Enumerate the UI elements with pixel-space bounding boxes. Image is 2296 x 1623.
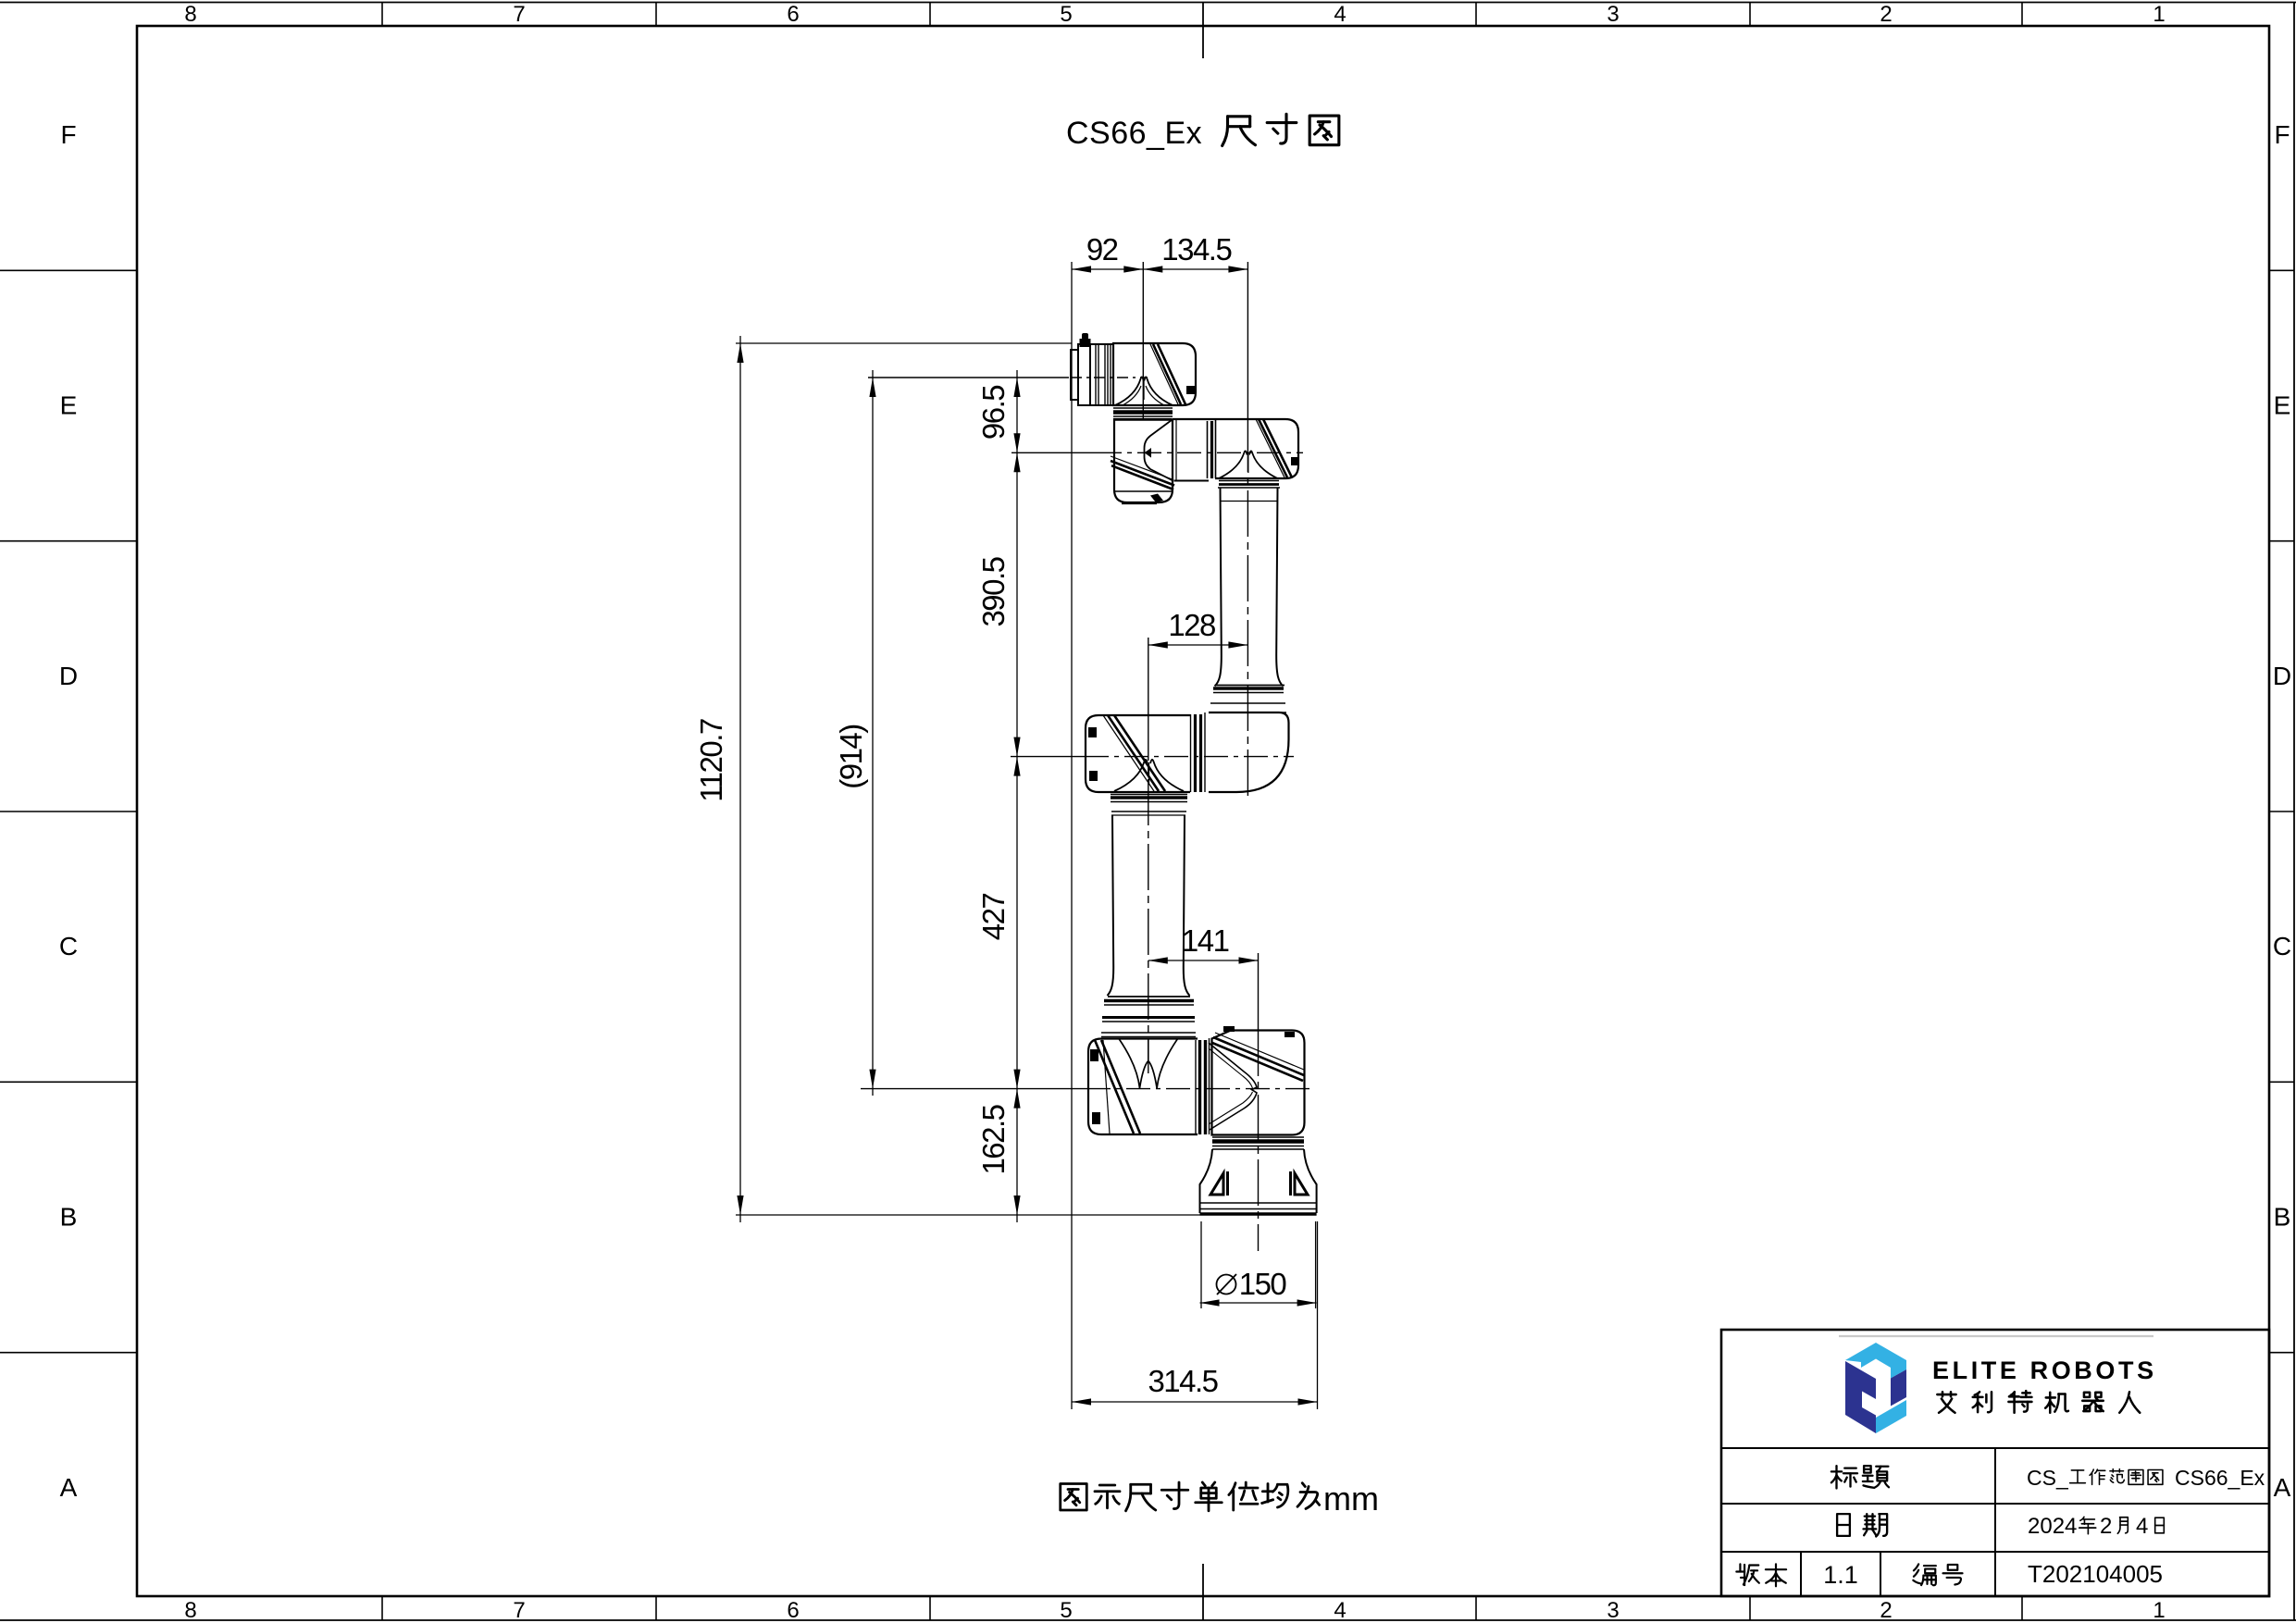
svg-text:8: 8 [184, 1598, 196, 1623]
svg-text:8: 8 [184, 2, 196, 27]
svg-text:1120.7: 1120.7 [694, 719, 728, 802]
svg-text:CS_: CS_ [2027, 1466, 2069, 1490]
svg-text:5: 5 [1060, 1598, 1072, 1623]
svg-text:B: B [2274, 1203, 2291, 1232]
svg-text:1: 1 [2153, 2, 2165, 27]
svg-text:CS66_Ex: CS66_Ex [1066, 116, 1202, 151]
svg-text:F: F [60, 120, 76, 149]
svg-text:2: 2 [1880, 2, 1892, 27]
svg-text:128: 128 [1168, 608, 1215, 642]
svg-text:ELITE ROBOTS: ELITE ROBOTS [1932, 1357, 2157, 1384]
svg-text:D: D [59, 662, 78, 690]
svg-text:D: D [2273, 662, 2291, 690]
svg-text:E: E [2274, 391, 2291, 420]
svg-text:2: 2 [1880, 1598, 1892, 1623]
svg-text:96.5: 96.5 [976, 386, 1011, 440]
svg-text:mm: mm [1323, 1480, 1379, 1518]
svg-text:134.5: 134.5 [1161, 232, 1231, 266]
svg-text:C: C [2273, 932, 2291, 960]
svg-text:2: 2 [2100, 1514, 2112, 1539]
svg-text:4: 4 [1334, 1598, 1346, 1623]
svg-text:7: 7 [513, 1598, 525, 1623]
svg-text:314.5: 314.5 [1148, 1364, 1217, 1398]
svg-text:1.1: 1.1 [1823, 1561, 1858, 1589]
svg-text:B: B [60, 1203, 78, 1232]
svg-text:E: E [60, 391, 78, 420]
svg-text:150: 150 [1239, 1267, 1287, 1301]
svg-text:141: 141 [1182, 923, 1229, 958]
svg-text:C: C [59, 932, 78, 960]
svg-text:4: 4 [1334, 2, 1346, 27]
svg-text:3: 3 [1607, 2, 1619, 27]
svg-text:1: 1 [2153, 1598, 2165, 1623]
svg-text:2024: 2024 [2028, 1514, 2077, 1539]
svg-text:T202104005: T202104005 [2028, 1560, 2163, 1588]
svg-text:7: 7 [513, 2, 525, 27]
svg-text:390.5: 390.5 [976, 557, 1011, 626]
svg-text:6: 6 [787, 1598, 799, 1623]
svg-text:3: 3 [1607, 1598, 1619, 1623]
svg-text:A: A [60, 1473, 78, 1502]
svg-text:CS66_Ex: CS66_Ex [2175, 1466, 2265, 1490]
svg-text:A: A [2274, 1473, 2291, 1502]
svg-text:427: 427 [976, 894, 1011, 941]
svg-text:92: 92 [1086, 232, 1118, 266]
svg-text:5: 5 [1060, 2, 1072, 27]
svg-text:F: F [2274, 120, 2290, 149]
svg-text:162.5: 162.5 [976, 1105, 1011, 1174]
svg-text:4: 4 [2136, 1514, 2148, 1539]
svg-text:(914): (914) [834, 725, 868, 789]
svg-text:6: 6 [787, 2, 799, 27]
